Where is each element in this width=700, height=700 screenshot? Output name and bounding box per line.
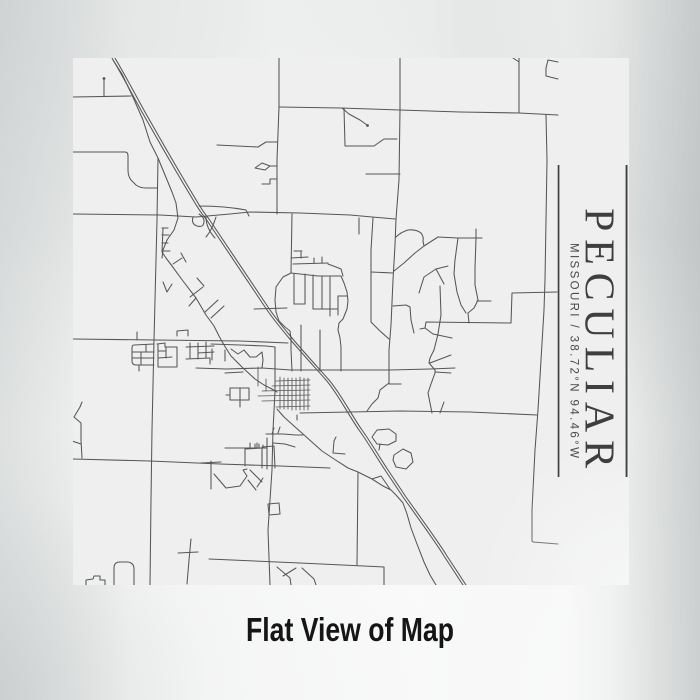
svg-text:Flat View of Map: Flat View of Map [246,612,454,649]
svg-text:PECULIAR: PECULIAR [576,208,622,468]
svg-text:MISSOURI / 38.72°N 94.46°W: MISSOURI / 38.72°N 94.46°W [568,243,580,458]
